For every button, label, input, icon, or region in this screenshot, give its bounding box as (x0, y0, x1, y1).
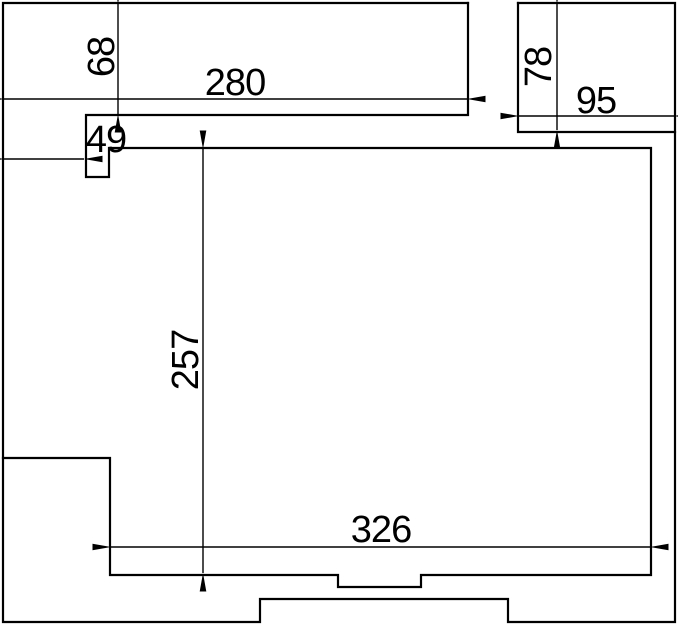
dimension-label-280: 280 (205, 62, 265, 104)
dimension-label-49: 49 (86, 119, 126, 161)
floor-plan-drawing: 68 280 49 78 95 257 (0, 0, 678, 627)
drawing-canvas: 68 280 49 78 95 257 (0, 0, 678, 627)
dimension-78: 78 (518, 4, 560, 130)
dimension-label-68: 68 (81, 37, 123, 77)
dimension-326: 326 (111, 509, 650, 551)
dimension-68: 68 (81, 4, 123, 114)
dimension-257: 257 (165, 149, 207, 573)
wall-inner-run (3, 3, 651, 587)
wall-outer-boundary (3, 3, 675, 622)
dimension-label-95: 95 (576, 80, 616, 122)
dimensions: 68 280 49 78 95 257 (4, 4, 674, 573)
wall-outline (3, 3, 675, 622)
dimension-label-257: 257 (165, 330, 207, 390)
dimension-label-326: 326 (351, 509, 411, 551)
dimension-label-78: 78 (518, 47, 560, 87)
dimension-280: 280 (4, 62, 467, 104)
dimension-49: 49 (4, 119, 126, 161)
